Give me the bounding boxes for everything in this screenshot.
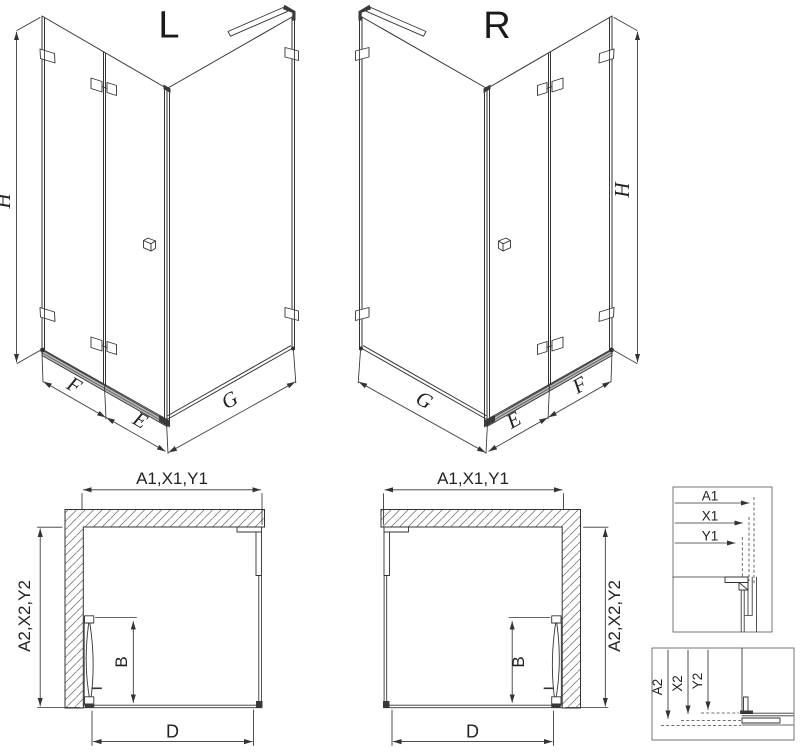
iso-left-title: L — [158, 5, 179, 47]
plan-right-view: A1,X1,Y1 A2,X2,Y2 B D — [381, 469, 624, 746]
technical-drawing-page: L H F E G R H G E F A1,X1,Y1 A2,X2,Y2 B … — [0, 0, 800, 752]
detail-x1-label: X1 — [702, 509, 719, 524]
plan-right-door-dim-label: B — [509, 656, 528, 667]
iso-right-title: R — [483, 5, 510, 47]
side-width-dim-label-right: G — [412, 386, 437, 414]
door-width-dim-label-left: E — [128, 406, 152, 434]
plan-right-bottom-dim-label: D — [466, 722, 479, 742]
iso-right-linework — [356, 5, 638, 454]
plan-left-door-dim-label: B — [112, 656, 131, 667]
hatched-walls-left — [65, 510, 265, 709]
detail-a1-label: A1 — [702, 489, 719, 504]
detail-y2-label: Y2 — [690, 673, 705, 690]
detail-width-frame — [673, 487, 772, 632]
side-width-dim-label-left: G — [217, 386, 242, 414]
detail-a2-label: A2 — [650, 679, 665, 696]
iso-right-view: R H G E F — [356, 5, 638, 454]
door-width-dim-label-right: E — [501, 406, 525, 434]
plan-right-top-dim-label: A1,X1,Y1 — [437, 469, 509, 488]
detail-depth-frame — [652, 648, 794, 740]
plan-left-top-dim-label: A1,X1,Y1 — [136, 469, 208, 488]
shower-enclosure-technical-drawing: L H F E G R H G E F A1,X1,Y1 A2,X2,Y2 B … — [0, 0, 800, 752]
plan-left-view: A1,X1,Y1 A2,X2,Y2 B D — [15, 469, 265, 746]
height-dim-label-left: H — [0, 192, 15, 210]
detail-x2-label: X2 — [670, 675, 685, 692]
plan-left-bottom-dim-label: D — [166, 722, 179, 742]
iso-left-linework — [17, 5, 299, 454]
iso-left-view: L H F E G — [0, 5, 299, 454]
height-dim-label-right: H — [610, 181, 634, 199]
plan-left-side-dim-label: A2,X2,Y2 — [15, 580, 34, 652]
width-reference-detail: A1 X1 Y1 — [673, 487, 772, 632]
hatched-walls-right — [381, 510, 581, 709]
plan-right-side-dim-label: A2,X2,Y2 — [605, 580, 624, 652]
detail-y1-label: Y1 — [702, 529, 719, 544]
depth-reference-detail: A2 X2 Y2 — [650, 648, 794, 740]
